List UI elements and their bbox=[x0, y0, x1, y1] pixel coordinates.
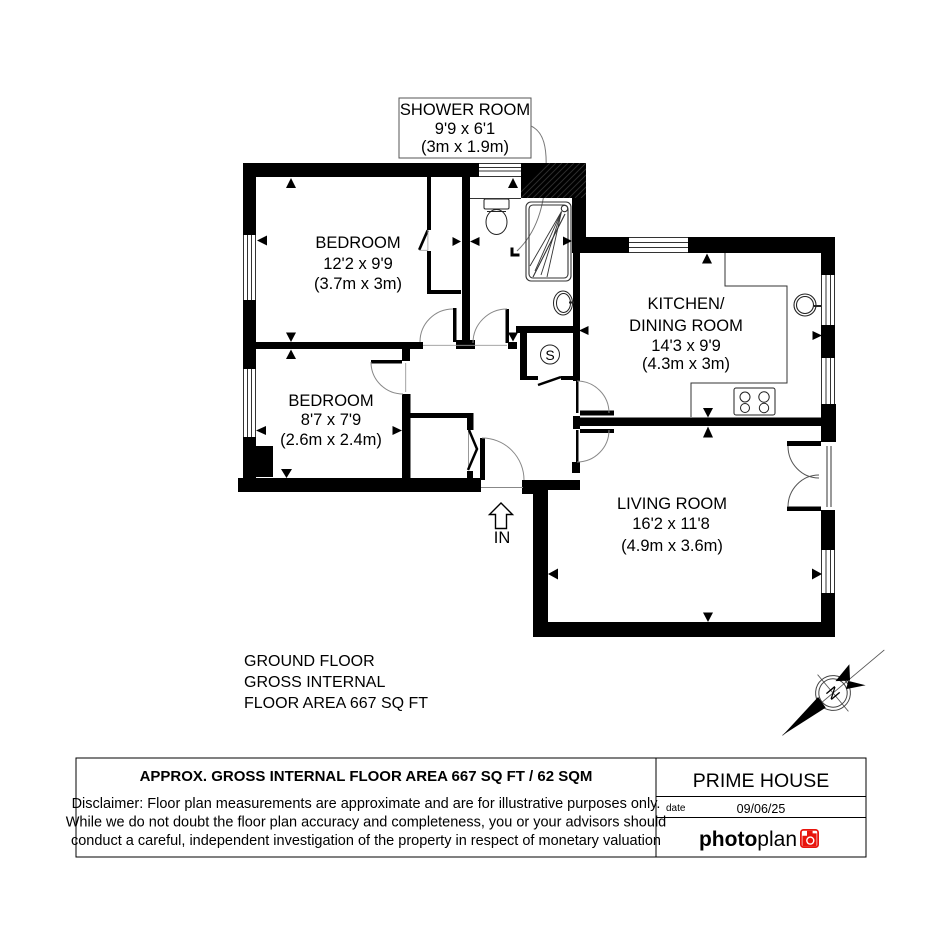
svg-text:(3m x 1.9m): (3m x 1.9m) bbox=[421, 138, 509, 156]
svg-text:S: S bbox=[545, 347, 554, 363]
svg-text:While we do not doubt the floo: While we do not doubt the floor plan acc… bbox=[66, 815, 666, 831]
svg-text:8'7 x 7'9: 8'7 x 7'9 bbox=[301, 411, 361, 429]
svg-text:GROUND FLOOR: GROUND FLOOR bbox=[244, 653, 375, 670]
svg-text:DINING ROOM: DINING ROOM bbox=[629, 317, 743, 335]
svg-text:16'2 x 11'8: 16'2 x 11'8 bbox=[632, 515, 710, 533]
svg-text:IN: IN bbox=[494, 529, 511, 547]
svg-text:Disclaimer: Floor plan measure: Disclaimer: Floor plan measurements are … bbox=[72, 796, 661, 812]
svg-text:date: date bbox=[666, 803, 686, 814]
svg-text:GROSS INTERNAL: GROSS INTERNAL bbox=[244, 674, 385, 691]
svg-text:(2.6m x 2.4m): (2.6m x 2.4m) bbox=[280, 431, 382, 449]
svg-text:BEDROOM: BEDROOM bbox=[315, 234, 400, 252]
svg-text:9'9 x 6'1: 9'9 x 6'1 bbox=[435, 120, 495, 138]
svg-text:09/06/25: 09/06/25 bbox=[737, 802, 786, 816]
svg-text:photoplan: photoplan bbox=[699, 828, 797, 851]
svg-text:(4.3m x 3m): (4.3m x 3m) bbox=[642, 355, 730, 373]
svg-text:conduct a careful, independent: conduct a careful, independent investiga… bbox=[71, 833, 661, 849]
svg-text:14'3 x 9'9: 14'3 x 9'9 bbox=[651, 337, 721, 355]
svg-text:SHOWER ROOM: SHOWER ROOM bbox=[400, 101, 530, 119]
svg-text:BEDROOM: BEDROOM bbox=[288, 392, 373, 410]
svg-text:(4.9m x 3.6m): (4.9m x 3.6m) bbox=[621, 537, 723, 555]
svg-text:LIVING ROOM: LIVING ROOM bbox=[617, 495, 727, 513]
svg-text:FLOOR AREA 667 SQ FT: FLOOR AREA 667 SQ FT bbox=[244, 695, 428, 712]
svg-text:(3.7m x 3m): (3.7m x 3m) bbox=[314, 275, 402, 293]
svg-text:12'2 x 9'9: 12'2 x 9'9 bbox=[323, 255, 393, 273]
svg-text:KITCHEN/: KITCHEN/ bbox=[647, 295, 724, 313]
svg-text:APPROX. GROSS INTERNAL FLOOR A: APPROX. GROSS INTERNAL FLOOR AREA 667 SQ… bbox=[140, 768, 593, 785]
svg-text:PRIME HOUSE: PRIME HOUSE bbox=[693, 770, 830, 792]
